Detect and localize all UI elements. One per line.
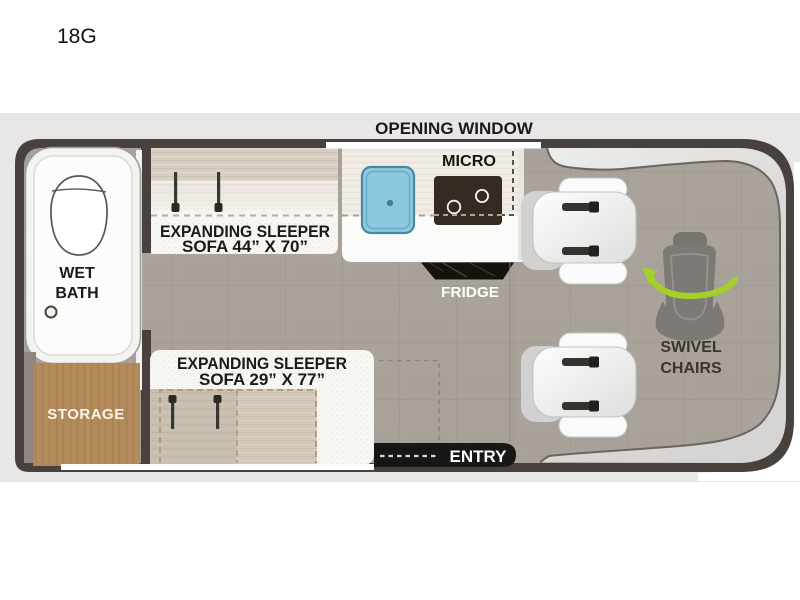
svg-text:OPENING WINDOW: OPENING WINDOW bbox=[375, 119, 534, 138]
svg-text:18G: 18G bbox=[57, 25, 97, 48]
svg-text:SOFA 29” X 77”: SOFA 29” X 77” bbox=[199, 370, 325, 389]
svg-text:WET: WET bbox=[59, 265, 95, 282]
svg-text:FRIDGE: FRIDGE bbox=[441, 284, 499, 301]
svg-text:SOFA 44” X 70”: SOFA 44” X 70” bbox=[182, 237, 308, 256]
svg-text:MICRO: MICRO bbox=[442, 153, 496, 170]
svg-text:SWIVEL: SWIVEL bbox=[660, 339, 722, 356]
svg-text:STORAGE: STORAGE bbox=[47, 406, 124, 423]
svg-text:ENTRY: ENTRY bbox=[450, 447, 508, 466]
svg-text:CHAIRS: CHAIRS bbox=[660, 360, 722, 377]
svg-text:BATH: BATH bbox=[55, 285, 98, 302]
